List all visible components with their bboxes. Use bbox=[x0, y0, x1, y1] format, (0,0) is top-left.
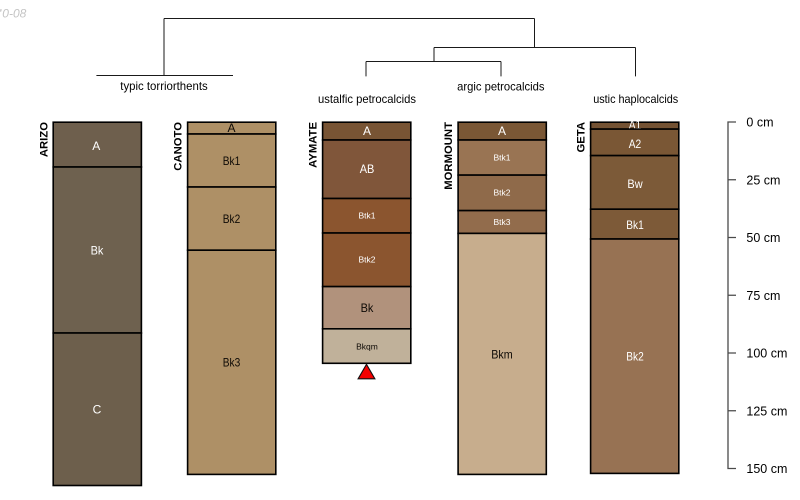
svg-text:A: A bbox=[498, 124, 506, 138]
svg-text:GETA: GETA bbox=[576, 122, 588, 153]
svg-text:75 cm: 75 cm bbox=[746, 289, 780, 303]
svg-text:Bk2: Bk2 bbox=[626, 350, 644, 364]
svg-text:Btk3: Btk3 bbox=[493, 217, 510, 227]
svg-text:AB: AB bbox=[360, 162, 375, 176]
svg-text:50 cm: 50 cm bbox=[746, 231, 780, 245]
svg-text:125 cm: 125 cm bbox=[746, 404, 787, 418]
svg-text:A: A bbox=[92, 139, 100, 153]
svg-text:Btk2: Btk2 bbox=[493, 188, 510, 198]
svg-text:Bw: Bw bbox=[627, 177, 643, 191]
svg-text:Bkqm: Bkqm bbox=[356, 341, 378, 351]
svg-text:150 cm: 150 cm bbox=[746, 462, 787, 476]
svg-text:typic torriorthents: typic torriorthents bbox=[120, 79, 207, 93]
svg-text:ustalfic petrocalcids: ustalfic petrocalcids bbox=[318, 92, 416, 106]
svg-text:Bk: Bk bbox=[91, 243, 105, 257]
svg-text:ARIZO: ARIZO bbox=[39, 122, 51, 157]
svg-text:ustic haplocalcids: ustic haplocalcids bbox=[593, 92, 678, 106]
svg-text:C: C bbox=[93, 403, 102, 417]
svg-text:CANOTO: CANOTO bbox=[173, 122, 185, 171]
svg-text:100 cm: 100 cm bbox=[746, 347, 787, 361]
svg-text:Bk3: Bk3 bbox=[223, 356, 241, 370]
svg-text:Btk2: Btk2 bbox=[358, 255, 375, 265]
svg-text:25 cm: 25 cm bbox=[746, 173, 780, 187]
svg-text:Bk2: Bk2 bbox=[223, 212, 241, 226]
svg-text:Bkm: Bkm bbox=[491, 347, 513, 361]
svg-text:Btk1: Btk1 bbox=[358, 211, 375, 221]
svg-text:0-08: 0-08 bbox=[2, 7, 26, 21]
svg-text:Bk: Bk bbox=[361, 301, 375, 315]
svg-text:0 cm: 0 cm bbox=[746, 116, 773, 130]
svg-text:A: A bbox=[363, 124, 371, 138]
svg-text:Btk1: Btk1 bbox=[493, 152, 510, 162]
svg-text:MORMOUNT: MORMOUNT bbox=[443, 122, 455, 190]
svg-text:Bk1: Bk1 bbox=[626, 218, 644, 232]
svg-text:argic petrocalcids: argic petrocalcids bbox=[457, 79, 544, 93]
svg-text:A2: A2 bbox=[629, 137, 642, 151]
svg-text:A: A bbox=[227, 121, 235, 135]
svg-text:AYMATE: AYMATE bbox=[308, 122, 320, 168]
svg-text:Bk1: Bk1 bbox=[223, 154, 241, 168]
